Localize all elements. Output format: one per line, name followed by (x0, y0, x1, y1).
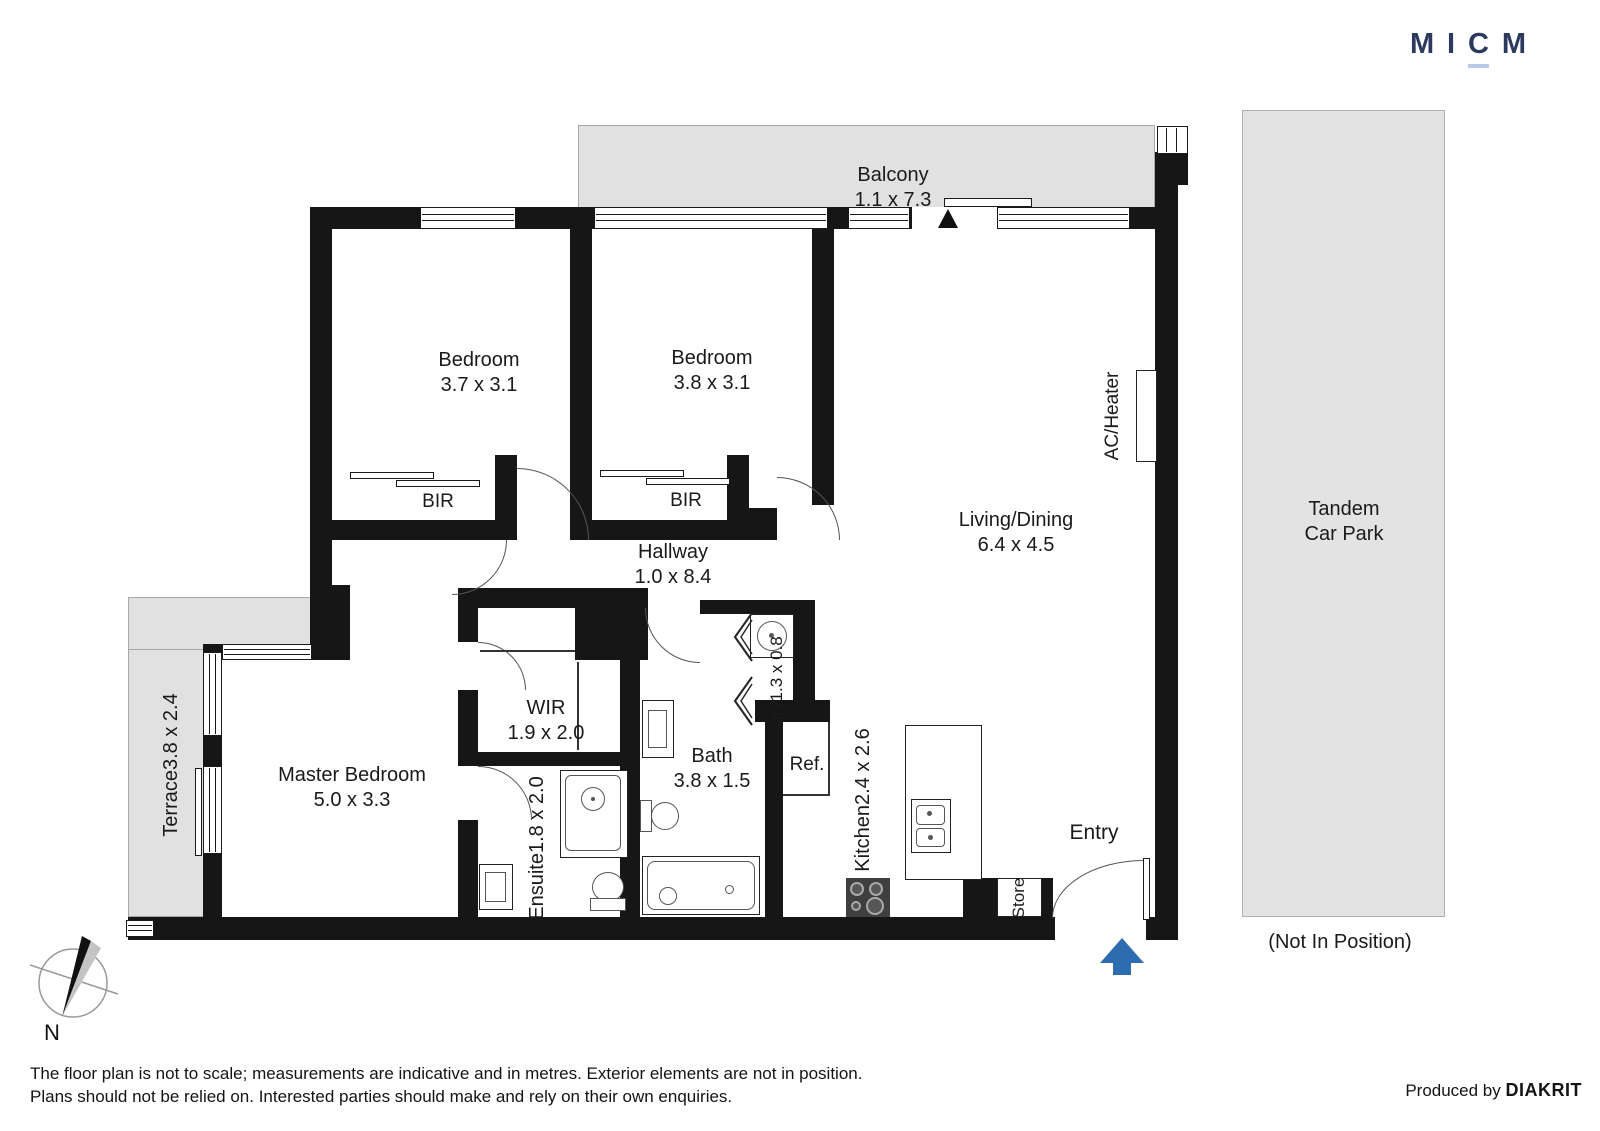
ac-heater-unit (1136, 370, 1157, 462)
door-arc-bath (645, 608, 700, 663)
ensuite-toilet-tank (590, 898, 626, 911)
label-bir1: BIR (398, 490, 478, 514)
label-carpark-note: (Not In Position) (1240, 930, 1440, 955)
terrace-area-top (128, 597, 314, 650)
entry-arrow-icon (1100, 938, 1144, 963)
wall-terrace-pier-bot (203, 854, 222, 917)
entry-arrow-stem (1113, 963, 1131, 975)
label-master: Master Bedroom5.0 x 3.3 (222, 763, 482, 813)
wall-bed2-living (812, 229, 834, 505)
shower (560, 770, 628, 858)
wall-right (1155, 152, 1178, 940)
wall-master-col-a (458, 588, 478, 642)
wall-store-left (963, 878, 997, 917)
terrace-door-leaf (195, 768, 202, 856)
bir1-rail (350, 472, 434, 479)
compass-icon: N (18, 918, 136, 1046)
wall-bottom-left (128, 917, 1055, 940)
wall-master-col-c (458, 820, 478, 917)
wall-core-block (575, 588, 648, 660)
window-master-top (222, 644, 312, 660)
wir-shelf-line (480, 650, 575, 652)
logo-letter: M (1410, 28, 1434, 68)
fridge-niche-line (783, 794, 830, 796)
bathtub (642, 856, 760, 915)
laundry-bifold-icon (731, 612, 755, 662)
logo-letter: M (1502, 28, 1526, 68)
door-arc-master (452, 540, 507, 595)
micm-logo: MICM (1410, 28, 1526, 68)
bath-toilet-bowl (651, 802, 679, 830)
laundry-bifold-icon (731, 676, 755, 726)
kitchen-sink (911, 799, 951, 853)
produced-by-text: Produced by (1405, 1081, 1505, 1100)
entry-door-leaf (1143, 858, 1150, 920)
wall-terrace-pier-mid (203, 736, 222, 766)
bir1-rail (396, 480, 480, 487)
window-balcony-corner (1157, 126, 1188, 154)
producer-name: DIAKRIT (1506, 1080, 1583, 1100)
ensuite-vanity (479, 864, 513, 910)
produced-by: Produced by DIAKRIT (1405, 1080, 1582, 1101)
label-entry: Entry (1034, 820, 1154, 846)
wall-bottom-right (1146, 917, 1178, 940)
window-bedroom1 (420, 207, 516, 229)
window-terrace-2 (203, 766, 222, 854)
label-wir: WIR1.9 x 2.0 (466, 696, 626, 746)
stove (846, 878, 890, 917)
compass-n-label: N (44, 1020, 60, 1045)
door-arc-entry (1052, 860, 1144, 918)
window-terrace-1 (203, 652, 222, 736)
wall-bir1-pier (495, 455, 517, 540)
wall-bir2-bottom (592, 520, 734, 540)
label-carpark: TandemCar Park (1244, 497, 1444, 547)
disclaimer-line-1: The floor plan is not to scale; measurem… (30, 1064, 862, 1084)
wall-bir2-step (727, 508, 777, 540)
label-bedroom2: Bedroom3.8 x 3.1 (612, 346, 812, 396)
wall-corner-block (310, 585, 350, 660)
door-arc-ensuite (478, 766, 532, 820)
label-fridge: Ref. (767, 753, 847, 777)
wall-wir-ensuite (458, 752, 640, 766)
floor-plan-page: MICM (0, 0, 1600, 1131)
logo-letter: I (1447, 28, 1455, 68)
bir2-rail (646, 478, 730, 485)
disclaimer-line-2: Plans should not be relied on. Intereste… (30, 1087, 732, 1107)
window-balcony-3 (997, 207, 1130, 229)
label-balcony: Balcony1.1 x 7.3 (793, 163, 993, 213)
label-bedroom1: Bedroom3.7 x 3.1 (379, 348, 579, 398)
wall-right-step (1155, 152, 1188, 185)
label-living: Living/Dining6.4 x 4.5 (916, 508, 1116, 558)
label-hallway: Hallway1.0 x 8.4 (573, 540, 773, 590)
bir2-rail (600, 470, 684, 477)
wall-store-right (1042, 878, 1053, 917)
wall-bir1-bottom (332, 520, 510, 540)
label-bir2: BIR (646, 489, 726, 513)
logo-letter: C (1468, 28, 1489, 68)
